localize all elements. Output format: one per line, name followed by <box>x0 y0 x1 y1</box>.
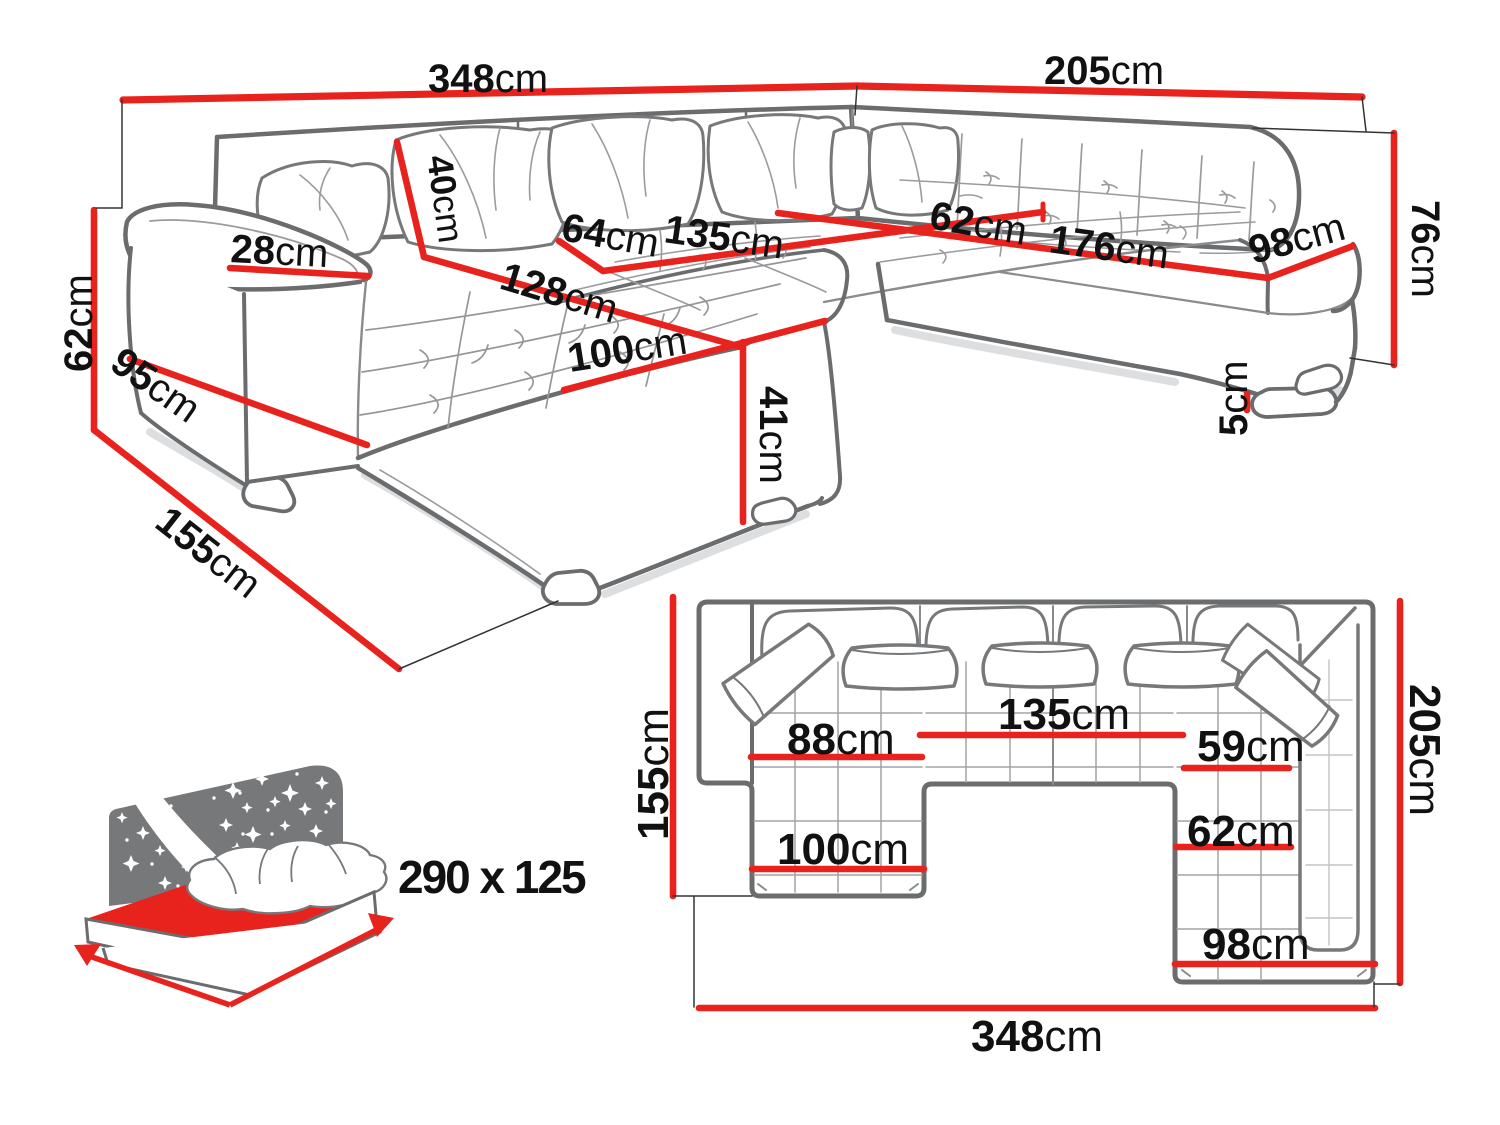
svg-text:98cm: 98cm <box>1202 920 1310 969</box>
svg-text:76cm: 76cm <box>1403 200 1447 298</box>
svg-text:28cm: 28cm <box>230 227 330 276</box>
svg-text:348cm: 348cm <box>971 1012 1103 1061</box>
svg-text:5cm: 5cm <box>1212 360 1256 436</box>
svg-text:205cm: 205cm <box>1044 49 1164 93</box>
svg-text:100cm: 100cm <box>777 825 909 874</box>
svg-text:59cm: 59cm <box>1197 722 1305 771</box>
svg-text:290 x 125: 290 x 125 <box>398 851 586 903</box>
svg-text:41cm: 41cm <box>751 386 795 484</box>
svg-text:62cm: 62cm <box>1187 807 1295 856</box>
svg-text:62cm: 62cm <box>57 274 101 372</box>
svg-text:155cm: 155cm <box>629 708 678 840</box>
svg-text:348cm: 348cm <box>428 57 548 101</box>
svg-text:135cm: 135cm <box>998 690 1130 739</box>
svg-text:205cm: 205cm <box>1400 684 1449 816</box>
svg-text:88cm: 88cm <box>787 715 895 764</box>
